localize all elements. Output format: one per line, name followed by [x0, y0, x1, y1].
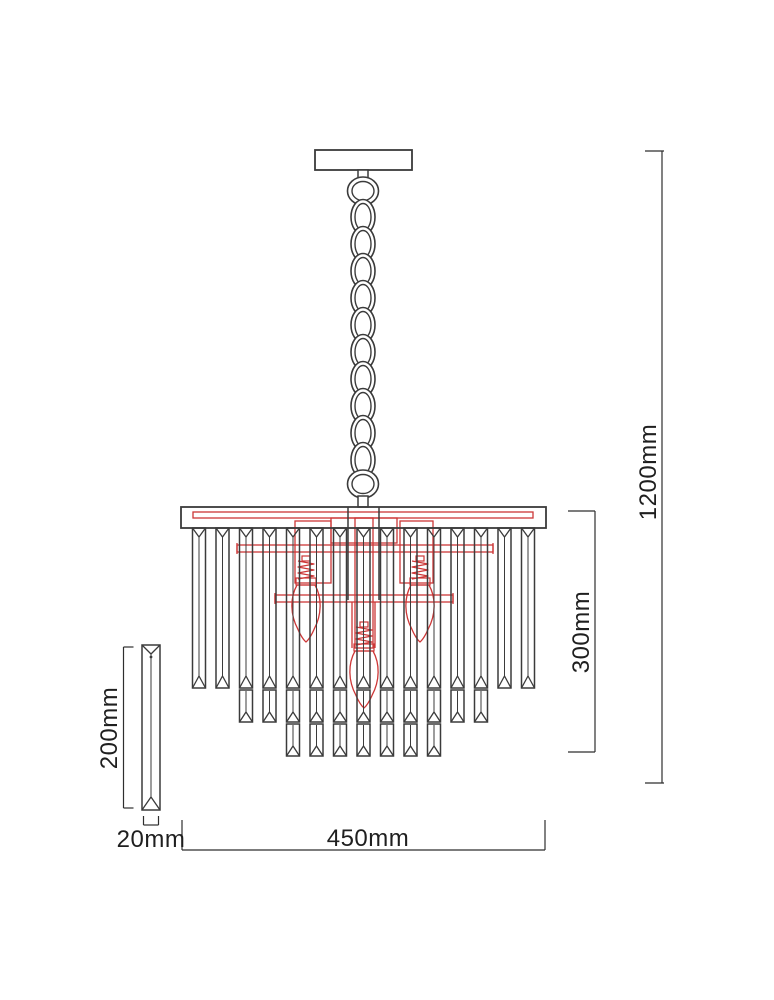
crystal-prism-tier3-bottom-facet	[381, 746, 394, 756]
crystal-prism-tier3-bottom-facet	[334, 746, 347, 756]
crystal-prism-bottom-facet	[216, 676, 229, 688]
body-height-dimension-label: 300mm	[568, 591, 595, 674]
crystal-prism-tier2-bottom-facet	[263, 712, 276, 722]
crystal-prism-bottom-facet	[263, 676, 276, 688]
crystal-prism-top-facet	[522, 528, 535, 537]
diagram-canvas: 1200mm 300mm 450mm 200mm 20mm	[0, 0, 774, 1000]
crystal-prism-top-facet	[334, 528, 347, 537]
candle-bulb-left-tip	[302, 556, 310, 561]
crystal-detail-view	[142, 645, 160, 810]
crystal-prism-bottom-facet	[498, 676, 511, 688]
crystal-prism-top-facet	[263, 528, 276, 537]
crystal-width-dimension-label: 20mm	[117, 826, 186, 853]
crystal-prism-bottom-facet	[428, 676, 441, 688]
crystal-prism-bottom-facet	[475, 676, 488, 688]
band-connector	[358, 496, 368, 507]
crystal-prism-top-facet	[240, 528, 253, 537]
detail-crystal-bottom-facet	[142, 797, 160, 810]
crystal-prism-top-facet	[451, 528, 464, 537]
crystal-prism-bottom-facet	[287, 676, 300, 688]
crystal-prism-tier2-bottom-facet	[428, 712, 441, 722]
candle-bulb-right-coil	[412, 561, 428, 579]
crystal-prism-top-facet	[193, 528, 206, 537]
crystal-prism-tier3-bottom-facet	[428, 746, 441, 756]
crystal-prism-top-facet	[428, 528, 441, 537]
crystal-prism-bottom-facet	[357, 676, 370, 688]
crystal-prism-top-facet	[216, 528, 229, 537]
crystal-prism-tier3-bottom-facet	[357, 746, 370, 756]
body-width-dimension-label: 450mm	[327, 825, 410, 852]
crystal-prism-bottom-facet	[310, 676, 323, 688]
crystal-prism-tier2-bottom-facet	[381, 712, 394, 722]
crystal-prism-tier2-bottom-facet	[404, 712, 417, 722]
suspension-ring-bottom-inner	[352, 475, 374, 494]
crystal-prism-bottom-facet	[381, 676, 394, 688]
crystal-prism-bottom-facet	[451, 676, 464, 688]
crystal-prism-tier2-bottom-facet	[240, 712, 253, 722]
crystal-prism-tier2-bottom-facet	[451, 712, 464, 722]
crystal-prism-tier3-bottom-facet	[404, 746, 417, 756]
crystal-prism-bottom-facet	[334, 676, 347, 688]
ceiling-plate	[315, 150, 412, 170]
crystal-prism-top-facet	[404, 528, 417, 537]
crystal-prism-tier2-bottom-facet	[334, 712, 347, 722]
candle-bulb-left-glass	[292, 585, 320, 642]
crystal-prism-top-facet	[357, 528, 370, 537]
crystal-prism-bottom-facet	[193, 676, 206, 688]
crystal-prism-tier2-bottom-facet	[310, 712, 323, 722]
crystal-prism-tier2-bottom-facet	[475, 712, 488, 722]
crystal-prism-top-facet	[287, 528, 300, 537]
overall-height-dimension-label: 1200mm	[635, 424, 662, 520]
crystal-length-dimension-label: 200mm	[96, 687, 123, 770]
suspension-ring-top-inner	[352, 182, 374, 201]
chandelier-structure	[181, 150, 546, 756]
crystal-prism-tier2-bottom-facet	[287, 712, 300, 722]
crystal-prism-top-facet	[381, 528, 394, 537]
crystal-prism-tier3-bottom-facet	[310, 746, 323, 756]
crystal-prism-bottom-facet	[404, 676, 417, 688]
detail-crystal-hole	[150, 656, 153, 659]
crystal-prism-top-facet	[475, 528, 488, 537]
candle-bulb-left-coil	[298, 561, 314, 579]
crystal-prism-top-facet	[498, 528, 511, 537]
chandelier-dimension-diagram: 1200mm 300mm 450mm 200mm 20mm	[0, 0, 774, 1000]
detail-crystal-top-facet	[142, 645, 160, 654]
crystal-prism-top-facet	[310, 528, 323, 537]
crystal-prism-tier3-bottom-facet	[287, 746, 300, 756]
crystal-prism-tier2-bottom-facet	[357, 712, 370, 722]
frame-top-rail	[193, 512, 533, 518]
crystal-prism-bottom-facet	[240, 676, 253, 688]
crystal-prism-bottom-facet	[522, 676, 535, 688]
